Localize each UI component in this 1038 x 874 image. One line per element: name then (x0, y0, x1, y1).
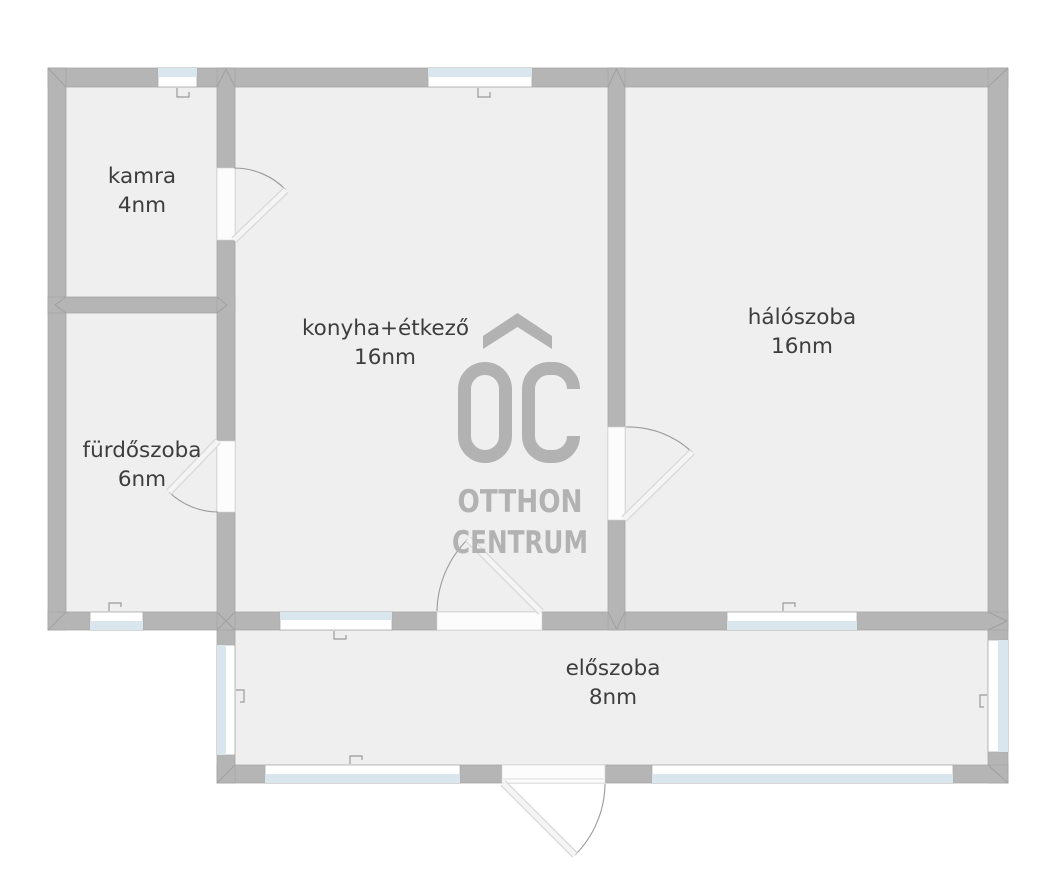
window-eloszoba-left (217, 645, 235, 755)
label-konyha-etkezo: konyha+étkező 16nm (302, 314, 468, 372)
window-haloszoba-bottom (727, 612, 857, 630)
label-eloszoba: előszoba 8nm (530, 654, 696, 712)
door-gap-konyha (437, 612, 542, 630)
room-area: 6nm (61, 465, 223, 494)
window-eloszoba-bottom-right (652, 765, 953, 783)
wall-left-interior (217, 68, 235, 630)
wall-kamra-furdo (48, 297, 235, 313)
logo-line2: CENTRUM (452, 525, 588, 561)
room-area: 16nm (719, 332, 885, 361)
room-name: konyha+étkező (302, 314, 468, 343)
room-name: előszoba (530, 654, 696, 683)
window-konyha-eloszoba-interior (280, 612, 392, 630)
door-arc-entrance (575, 784, 605, 855)
window-eloszoba-right (988, 640, 1008, 752)
logo-line1: OTTHON (458, 484, 583, 520)
room-area: 16nm (302, 343, 468, 372)
room-area: 4nm (62, 191, 222, 220)
label-kamra: kamra 4nm (62, 162, 222, 220)
door-gap-entrance (502, 765, 605, 783)
window-kamra-top (158, 68, 197, 87)
label-haloszoba: hálószoba 16nm (719, 303, 885, 361)
window-eloszoba-bottom-left (265, 765, 460, 783)
wall-left (48, 68, 66, 630)
room-name: fürdőszoba (61, 436, 223, 465)
room-name: kamra (62, 162, 222, 191)
window-furdoszoba-bottom (90, 612, 143, 630)
floorplan-canvas: OTTHON CENTRUM kamra 4nm fürdőszoba 6nm … (0, 0, 1038, 874)
wall-konyha-haloszoba (608, 68, 625, 630)
door-gap-haloszoba (608, 427, 625, 520)
room-name: hálószoba (719, 303, 885, 332)
label-furdoszoba: fürdőszoba 6nm (61, 436, 223, 494)
window-konyha-top (428, 68, 532, 87)
room-area: 8nm (530, 683, 696, 712)
